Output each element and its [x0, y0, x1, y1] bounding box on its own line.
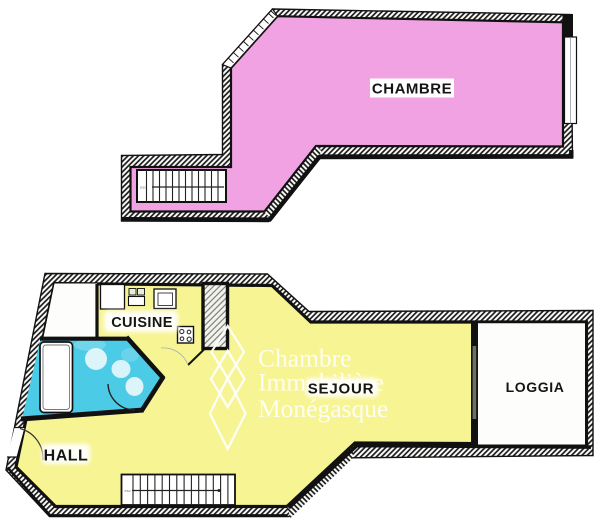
svg-text:CUISINE: CUISINE: [111, 315, 173, 331]
svg-text:SEJOUR: SEJOUR: [308, 381, 375, 398]
svg-text:Monégasque: Monégasque: [258, 394, 388, 423]
svg-text:esc: esc: [140, 185, 146, 190]
svg-text:CHAMBRE: CHAMBRE: [372, 81, 452, 98]
svg-text:LOGGIA: LOGGIA: [506, 379, 565, 395]
svg-text:HALL: HALL: [44, 448, 89, 465]
svg-text:esc: esc: [125, 488, 131, 493]
